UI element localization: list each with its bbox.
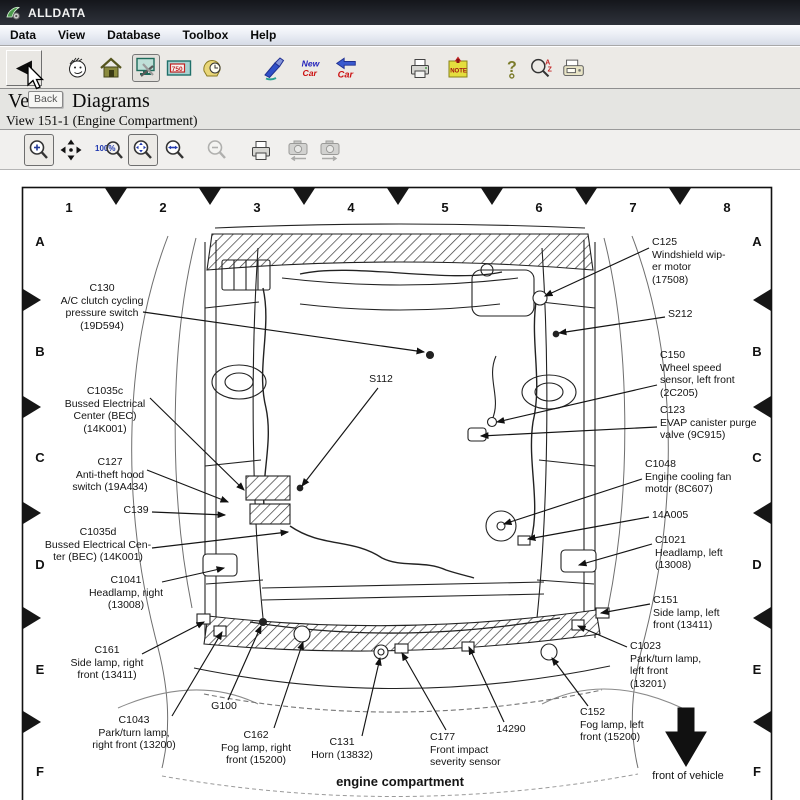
grid-col: 8 xyxy=(723,200,730,215)
diagrams-tools-button[interactable] xyxy=(132,54,160,82)
page-heading: Ve Diagrams Back View 151-1 (Engine Comp… xyxy=(0,89,800,130)
leader-lines xyxy=(142,248,665,736)
grid-col: 3 xyxy=(253,200,260,215)
grid-row-left: C xyxy=(35,450,45,465)
diagram-label-G100: G100 xyxy=(164,700,284,713)
home-button[interactable] xyxy=(98,55,124,81)
page-title: Diagrams xyxy=(72,90,150,113)
gauge-750-button[interactable]: 750 xyxy=(166,55,192,81)
new-car-text-car: Car xyxy=(302,67,317,77)
hand-clock-button[interactable] xyxy=(199,55,225,81)
zoom-in-button[interactable] xyxy=(24,134,54,166)
grid-row-right: F xyxy=(753,764,761,779)
components xyxy=(197,291,609,660)
grid-col: 2 xyxy=(159,200,166,215)
camera-next-icon xyxy=(316,137,346,163)
diagram-label-C1043: C1043 Park/turn lamp, right front (13200… xyxy=(74,714,194,752)
new-car-text-new: New xyxy=(302,58,321,68)
camera-previous-icon xyxy=(284,137,314,163)
diagram-label-C161: C161 Side lamp, right front (13411) xyxy=(47,644,167,682)
diagram-label-C139: C139 xyxy=(76,504,196,517)
print-view-button[interactable] xyxy=(246,134,276,166)
zoom-100-button[interactable]: 100% xyxy=(94,134,124,166)
grid-col: 1 xyxy=(65,200,72,215)
contact-face-button[interactable] xyxy=(64,55,90,81)
mouse-cursor xyxy=(26,64,46,92)
new-car-icon: New Car xyxy=(299,55,325,81)
diagram-label-C131: C131 Horn (13832) xyxy=(282,736,402,761)
grid-row-left: F xyxy=(36,764,44,779)
diagram-label-S212: S212 xyxy=(668,308,728,321)
zoom-out-icon xyxy=(204,137,230,163)
diagram-label-C130: C130 A/C clutch cycling pressure switch … xyxy=(42,282,162,332)
search-z-text: Z xyxy=(548,66,553,73)
grid-row-left: A xyxy=(35,234,45,249)
wash-brush-button[interactable] xyxy=(261,55,287,81)
diagram-label-C1035d: C1035d Bussed Electrical Cen- ter (BEC) … xyxy=(33,526,163,564)
print-button[interactable] xyxy=(407,55,433,81)
front-of-vehicle-label: front of vehicle xyxy=(643,770,733,783)
view-subtitle: View 151-1 (Engine Compartment) xyxy=(6,113,198,129)
diagram-caption: engine compartment xyxy=(330,776,470,789)
diagram-label-C1048: C1048 Engine cooling fan motor (8C607) xyxy=(645,458,763,496)
grid-col: 7 xyxy=(629,200,636,215)
printer-icon xyxy=(407,55,433,81)
printer-icon xyxy=(248,137,274,163)
menu-help[interactable]: Help xyxy=(250,28,276,42)
grid-row-right: E xyxy=(753,662,762,677)
diagrams-tools-icon xyxy=(133,55,159,81)
search-az-button[interactable]: A Z xyxy=(529,55,555,81)
return-car-button[interactable]: Car xyxy=(333,55,359,81)
note-text: NOTE xyxy=(450,68,467,74)
grid-col: 4 xyxy=(347,200,355,215)
help-key-button[interactable]: ? xyxy=(499,55,525,81)
diagram-label-C1041: C1041 Headlamp, right (13008) xyxy=(66,574,186,612)
diagram-label-14290: 14290 xyxy=(451,723,571,736)
menu-view[interactable]: View xyxy=(58,28,85,42)
return-car-icon: Car xyxy=(333,55,359,81)
diagram-label-C127: C127 Anti-theft hood switch (19A434) xyxy=(50,456,170,494)
zoom-100-icon: 100% xyxy=(94,137,124,163)
grid-row-right: A xyxy=(752,234,762,249)
zoom-fit-icon xyxy=(130,137,156,163)
grid-row-left: B xyxy=(35,344,44,359)
search-az-icon: A Z xyxy=(529,55,555,81)
window-title: ALLDATA xyxy=(28,6,86,20)
gauge-750-text: 750 xyxy=(172,65,183,72)
zoom-toolbar: 100% xyxy=(0,130,800,170)
grid-col: 6 xyxy=(535,200,542,215)
zoom-in-icon xyxy=(26,137,52,163)
grid-col: 5 xyxy=(441,200,448,215)
zoom-width-icon xyxy=(162,137,188,163)
menu-bar: Data View Database Toolbox Help xyxy=(0,25,800,46)
view-previous-button-disabled[interactable] xyxy=(284,134,314,166)
menu-toolbox[interactable]: Toolbox xyxy=(183,28,229,42)
diagram-label-C125: C125 Windshield wip- er motor (17508) xyxy=(652,236,752,286)
view-next-button-disabled[interactable] xyxy=(316,134,346,166)
diagram-label-C1035c: C1035c Bussed Electrical Center (BEC) (1… xyxy=(45,385,165,435)
wash-brush-icon xyxy=(261,55,287,81)
pan-icon xyxy=(58,137,84,163)
menu-data[interactable]: Data xyxy=(10,28,36,42)
diagram-label-C152: C152 Fog lamp, left front (15200) xyxy=(580,706,680,744)
new-car-button[interactable]: New Car xyxy=(299,55,325,81)
diagram-label-C150: C150 Wheel speed sensor, left front (2C2… xyxy=(660,349,768,399)
note-icon: NOTE xyxy=(445,55,471,81)
gauge-750-icon: 750 xyxy=(166,55,192,81)
diagram-label-C1021: C1021 Headlamp, left (13008) xyxy=(655,534,755,572)
wiring-harness xyxy=(250,270,560,633)
diagram-label-S112: S112 xyxy=(351,373,411,386)
zoom-100-text: 100% xyxy=(95,144,115,153)
pan-button[interactable] xyxy=(56,134,86,166)
hand-clock-icon xyxy=(199,55,225,81)
diagram-viewport[interactable]: 1 2 3 4 5 6 7 8 A B C D E F A B C D E F xyxy=(0,170,800,800)
contact-face-icon xyxy=(64,55,90,81)
fax-icon xyxy=(561,55,587,81)
grid-row-left: E xyxy=(36,662,45,677)
note-button[interactable]: NOTE xyxy=(445,55,471,81)
diagram-label-14A005: 14A005 xyxy=(652,509,732,522)
diagram-label-C123: C123 EVAP canister purge valve (9C915) xyxy=(660,404,772,442)
zoom-width-button[interactable] xyxy=(160,134,190,166)
back-tooltip: Back xyxy=(28,91,63,108)
diagram-label-C151: C151 Side lamp, left front (13411) xyxy=(653,594,753,632)
diagram-label-C177: C177 Front impact severity sensor xyxy=(430,731,540,769)
help-key-icon: ? xyxy=(499,55,525,81)
main-toolbar: ◀ 750 xyxy=(0,47,800,89)
home-icon xyxy=(98,55,124,81)
alldata-logo-icon xyxy=(5,5,21,21)
menu-database[interactable]: Database xyxy=(107,28,160,42)
page-title-prefix: Ve xyxy=(8,90,29,113)
zoom-fit-button[interactable] xyxy=(128,134,158,166)
title-bar: ALLDATA xyxy=(0,0,800,25)
return-car-text: Car xyxy=(338,69,355,79)
zoom-out-button-disabled[interactable] xyxy=(202,134,232,166)
engine-bay-structure xyxy=(194,224,610,712)
fax-button[interactable] xyxy=(561,55,587,81)
search-a-text: A xyxy=(545,59,550,66)
diagram-label-C1023: C1023 Park/turn lamp, left front (13201) xyxy=(630,640,730,690)
